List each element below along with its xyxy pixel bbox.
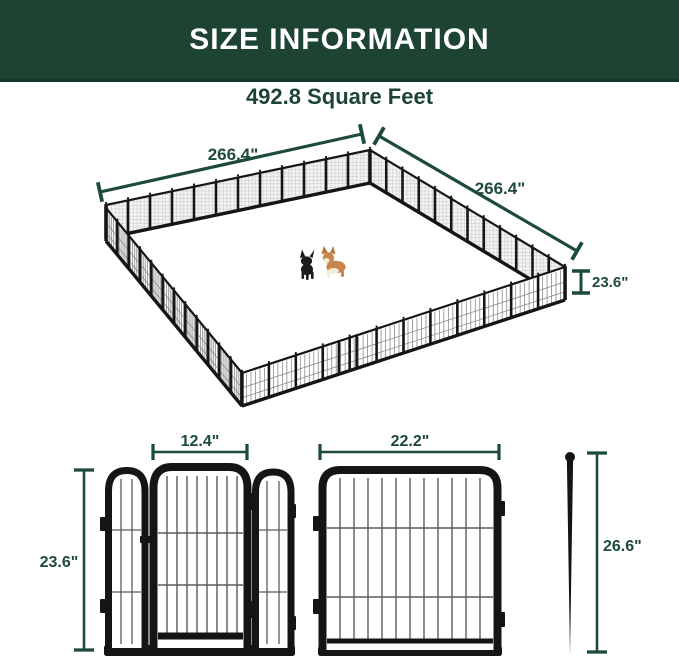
wall-front-left xyxy=(105,205,243,406)
dimension-label-panel-width: 22.2" xyxy=(391,433,430,450)
ground-stake xyxy=(565,452,575,655)
door-panel-group xyxy=(100,467,296,656)
door-latch xyxy=(140,536,152,543)
black-dog-illustration xyxy=(300,250,315,281)
single-panel xyxy=(313,470,505,656)
side-panel-right xyxy=(256,472,297,648)
dimension-label-fence-height: 23.6" xyxy=(592,274,628,291)
dimension-label-left-side: 266.4" xyxy=(208,145,259,164)
door-panel xyxy=(140,467,255,648)
dimension-label-stake-length: 26.6" xyxy=(603,538,642,555)
side-panel-left xyxy=(100,471,145,649)
page-title: SIZE INFORMATION xyxy=(189,23,489,57)
dimension-label-right-side: 266.4" xyxy=(475,179,526,198)
header-banner: SIZE INFORMATION xyxy=(0,0,679,82)
dimension-label-door-width: 12.4" xyxy=(181,433,220,450)
corgi-dog-illustration xyxy=(322,246,346,278)
wall-front-right xyxy=(241,264,566,406)
dimension-label-panel-height: 23.6" xyxy=(40,554,79,571)
area-subtitle: 492.8 Square Feet xyxy=(0,84,679,110)
